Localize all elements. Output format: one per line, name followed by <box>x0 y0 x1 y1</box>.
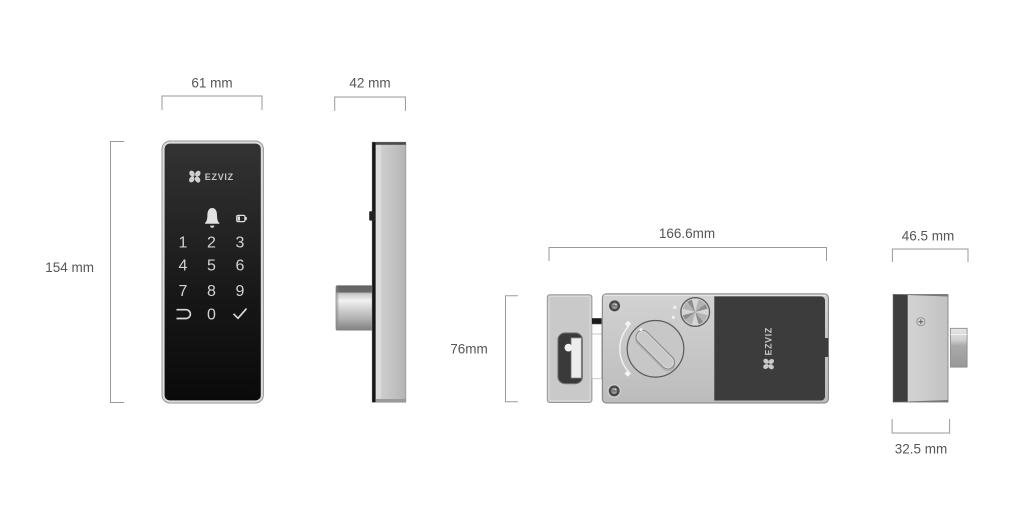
svg-text:32.5 mm: 32.5 mm <box>895 442 948 457</box>
svg-text:5: 5 <box>207 257 216 274</box>
svg-text:166.6mm: 166.6mm <box>659 226 715 241</box>
svg-text:6: 6 <box>236 257 245 274</box>
svg-text:9: 9 <box>236 283 245 300</box>
svg-text:154 mm: 154 mm <box>45 260 94 275</box>
svg-text:1: 1 <box>179 235 188 252</box>
svg-text:46.5 mm: 46.5 mm <box>902 229 955 244</box>
svg-text:61 mm: 61 mm <box>191 76 232 91</box>
svg-text:4: 4 <box>179 257 188 274</box>
svg-text:EZVIZ: EZVIZ <box>205 172 234 182</box>
svg-text:76mm: 76mm <box>450 342 488 357</box>
svg-text:3: 3 <box>236 235 245 252</box>
svg-text:EZVIZ: EZVIZ <box>764 327 774 355</box>
svg-text:0: 0 <box>207 307 216 324</box>
svg-text:8: 8 <box>207 283 216 300</box>
svg-text:7: 7 <box>179 283 188 300</box>
svg-text:2: 2 <box>207 235 216 252</box>
svg-text:42 mm: 42 mm <box>349 76 390 91</box>
